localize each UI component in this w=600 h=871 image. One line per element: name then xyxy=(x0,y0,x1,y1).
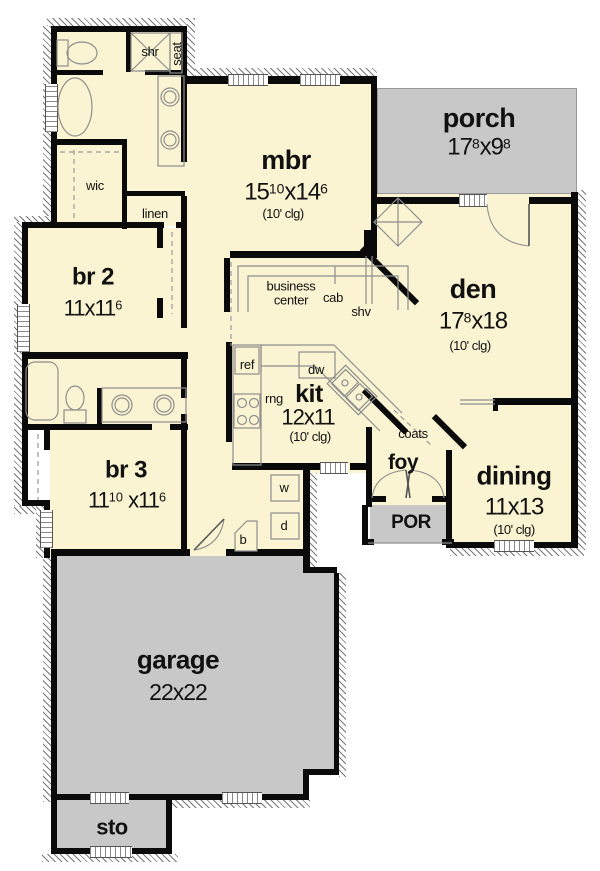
room-name-foy: foy xyxy=(388,452,418,474)
room-dim-mbr: 1510x146 xyxy=(244,179,328,204)
toilet-tank xyxy=(64,410,86,423)
room-name-porch: porch xyxy=(443,104,516,132)
room-name-sto: sto xyxy=(96,815,128,838)
label-linen: linen xyxy=(142,207,168,221)
label-ref: ref xyxy=(240,358,254,372)
room-name-den: den xyxy=(450,275,497,303)
room-name-por: POR xyxy=(391,513,431,533)
room-clg-mbr: (10' clg) xyxy=(262,207,303,221)
sink xyxy=(157,398,171,412)
room-dim-garage: 22x22 xyxy=(149,680,207,704)
room-name-dining: dining xyxy=(477,462,552,489)
room-name-garage: garage xyxy=(137,646,219,673)
door-arc-entry-right xyxy=(410,470,444,498)
vanity-counter xyxy=(158,76,184,166)
room-clg-den: (10' clg) xyxy=(449,339,490,353)
room-clg-kit: (10' clg) xyxy=(289,430,330,444)
room-name-kit: kit xyxy=(295,381,323,407)
sink xyxy=(164,134,176,146)
room-dim-br3: 1110 x116 xyxy=(88,488,166,511)
burner xyxy=(250,399,259,408)
label-seat: seat xyxy=(170,42,184,65)
label-broom: b xyxy=(240,533,247,547)
label-shv: shv xyxy=(351,305,370,319)
room-dim-dining: 11x13 xyxy=(485,494,544,519)
sink xyxy=(164,91,176,103)
label-business-center: businesscenter xyxy=(267,279,316,306)
room-name-br3: br 3 xyxy=(105,457,147,482)
room-dim-br2: 11x116 xyxy=(64,296,123,319)
label-wic: wic xyxy=(86,179,104,193)
label-shr: shr xyxy=(141,45,158,59)
bathtub xyxy=(26,362,58,420)
floor-plan: shr seat wic linen mbr 1510x146 (10' clg… xyxy=(0,0,600,871)
label-rng: rng xyxy=(265,392,283,406)
fireplace xyxy=(374,198,422,246)
label-washer: w xyxy=(279,481,288,495)
label-dryer: d xyxy=(281,519,288,533)
toilet-tank xyxy=(57,40,68,66)
room-clg-dining: (10' clg) xyxy=(493,523,534,537)
room-dim-porch: 178x98 xyxy=(447,134,511,159)
room-name-mbr: mbr xyxy=(261,146,311,174)
room-dim-den: 178x18 xyxy=(439,308,507,333)
door-arc-entry-left xyxy=(372,470,406,498)
room-name-br2: br 2 xyxy=(72,264,114,289)
label-cab: cab xyxy=(323,291,343,305)
toilet-bowl xyxy=(66,386,84,410)
burner xyxy=(238,399,247,408)
burner xyxy=(250,416,259,425)
toilet-bowl xyxy=(67,42,97,64)
door-arc-den-porch xyxy=(487,204,529,246)
burner xyxy=(238,416,247,425)
bathtub-oval xyxy=(58,78,92,136)
room-dim-kit: 12x11 xyxy=(281,405,334,428)
label-dw: dw xyxy=(308,363,324,377)
label-coats: coats xyxy=(398,427,428,441)
sink xyxy=(115,398,129,412)
